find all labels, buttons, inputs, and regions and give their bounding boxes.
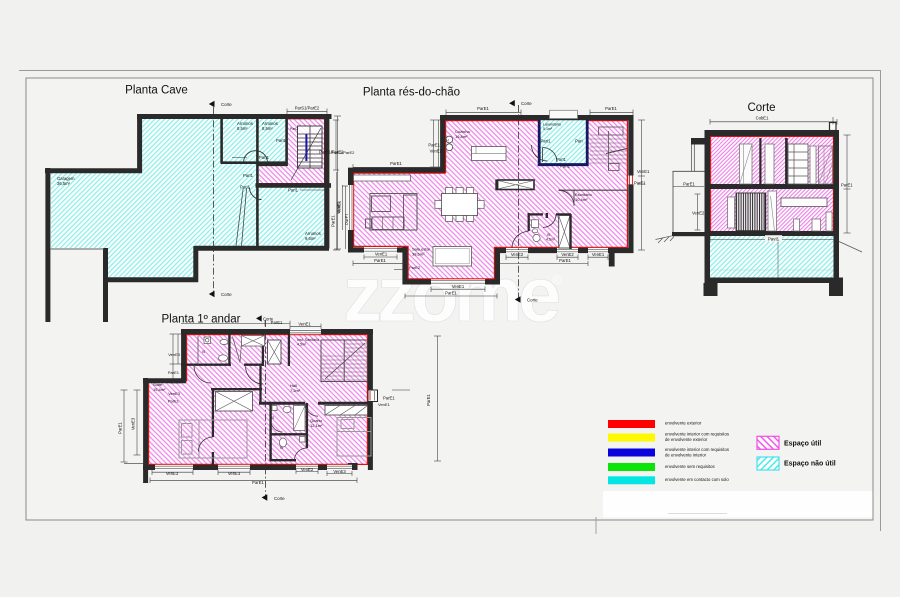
svg-text:VenE3: VenE3 bbox=[333, 469, 346, 474]
svg-text:ParI1: ParI1 bbox=[541, 139, 552, 144]
svg-text:VenE2: VenE2 bbox=[692, 211, 705, 216]
svg-text:VenE2: VenE2 bbox=[511, 252, 524, 257]
svg-text:36,5m²: 36,5m² bbox=[57, 181, 71, 186]
svg-text:CobE1: CobE1 bbox=[756, 116, 769, 121]
svg-text:envolvente interior com requis: envolvente interior com requisitos bbox=[665, 431, 729, 436]
svg-text:ParI1: ParI1 bbox=[560, 164, 571, 169]
svg-text:ParE1: ParE1 bbox=[390, 161, 402, 166]
svg-text:ParE1: ParE1 bbox=[559, 258, 571, 263]
svg-text:ParE1: ParE1 bbox=[168, 370, 180, 375]
svg-text:ParE1: ParE1 bbox=[374, 258, 386, 263]
svg-text:ParE1: ParE1 bbox=[383, 396, 395, 401]
svg-text:7,2m²: 7,2m² bbox=[290, 388, 301, 393]
svg-text:15,4m²: 15,4m² bbox=[153, 387, 166, 392]
svg-text:VenE2: VenE2 bbox=[561, 252, 574, 257]
svg-text:VenE3: VenE3 bbox=[166, 471, 179, 476]
svg-text:9,6m²: 9,6m² bbox=[305, 236, 316, 241]
svg-text:ParI2: ParI2 bbox=[290, 127, 298, 131]
svg-text:ParI: ParI bbox=[575, 139, 583, 144]
svg-text:5,1m²: 5,1m² bbox=[543, 127, 553, 131]
svg-text:Corte: Corte bbox=[747, 102, 775, 114]
svg-text:ParE1: ParE1 bbox=[118, 422, 123, 434]
svg-text:VenE3: VenE3 bbox=[168, 352, 181, 357]
svg-text:VenE1: VenE1 bbox=[298, 321, 311, 326]
svg-text:VenE2: VenE2 bbox=[430, 149, 443, 154]
svg-text:Espaço não útil: Espaço não útil bbox=[784, 461, 836, 468]
svg-text:Planta 1º andar: Planta 1º andar bbox=[161, 314, 240, 326]
svg-text:ParE1: ParE1 bbox=[841, 183, 853, 188]
svg-text:de envolvente interior: de envolvente interior bbox=[665, 453, 707, 458]
svg-text:de envolvente exterior: de envolvente exterior bbox=[665, 437, 708, 442]
svg-text:Corte: Corte bbox=[527, 298, 538, 303]
svg-text:envolvente exterior: envolvente exterior bbox=[665, 421, 702, 426]
svg-text:Inst. Sanitária: Inst. Sanitária bbox=[297, 338, 319, 342]
svg-text:PavI1: PavI1 bbox=[768, 237, 780, 242]
svg-text:VenE1: VenE1 bbox=[378, 402, 391, 407]
svg-text:ParI1: ParI1 bbox=[240, 185, 251, 190]
svg-text:8,5m²: 8,5m² bbox=[262, 126, 273, 131]
svg-text:envolvente sem requisitos: envolvente sem requisitos bbox=[665, 464, 715, 469]
svg-text:ParE1: ParE1 bbox=[426, 394, 431, 406]
svg-text:envolvente interior com requis: envolvente interior com requisitos bbox=[665, 447, 729, 452]
svg-text:VenE3: VenE3 bbox=[168, 391, 181, 396]
svg-text:VenE1: VenE1 bbox=[452, 284, 465, 289]
svg-text:ParI1: ParI1 bbox=[243, 173, 254, 178]
svg-text:ParI1: ParI1 bbox=[259, 155, 270, 160]
svg-text:ParI1: ParI1 bbox=[556, 157, 567, 162]
svg-text:ParI1: ParI1 bbox=[276, 138, 287, 143]
svg-text:ParE1: ParE1 bbox=[252, 480, 264, 485]
svg-text:VenE1: VenE1 bbox=[375, 252, 388, 257]
svg-text:VenE3: VenE3 bbox=[131, 417, 136, 430]
svg-text:Planta Cave: Planta Cave bbox=[125, 85, 188, 97]
svg-text:ParE1: ParE1 bbox=[683, 181, 695, 186]
svg-text:VenE1: VenE1 bbox=[336, 201, 341, 214]
svg-text:Corte: Corte bbox=[521, 101, 532, 106]
svg-text:Corte: Corte bbox=[221, 292, 232, 297]
svg-text:ParE1: ParE1 bbox=[605, 106, 617, 111]
svg-text:Planta rés-do-chão: Planta rés-do-chão bbox=[363, 87, 460, 99]
svg-text:Corte: Corte bbox=[221, 102, 232, 107]
svg-text:VenE3: VenE3 bbox=[228, 471, 241, 476]
svg-text:VenE1: VenE1 bbox=[637, 169, 650, 174]
svg-text:16,8m²: 16,8m² bbox=[455, 134, 468, 139]
svg-text:Corte: Corte bbox=[274, 496, 285, 501]
svg-text:envolvente em contacto com sol: envolvente em contacto com solo bbox=[665, 477, 729, 482]
svg-text:8,5m²: 8,5m² bbox=[237, 126, 248, 131]
svg-text:38,6m²: 38,6m² bbox=[412, 252, 425, 257]
svg-text:ParE1: ParE1 bbox=[634, 181, 646, 186]
svg-text:ParS1/ParE2: ParS1/ParE2 bbox=[295, 106, 320, 111]
svg-text:ParI1: ParI1 bbox=[288, 188, 299, 193]
svg-text:ParE1: ParE1 bbox=[331, 215, 336, 227]
svg-text:ParE2: ParE2 bbox=[409, 265, 421, 270]
svg-text:ParE1: ParE1 bbox=[477, 106, 489, 111]
svg-text:®: ® bbox=[552, 272, 562, 287]
svg-text:Espaço útil: Espaço útil bbox=[784, 440, 821, 447]
svg-text:10,4m²: 10,4m² bbox=[575, 197, 588, 202]
svg-text:12,1m²: 12,1m² bbox=[310, 423, 323, 428]
svg-text:VenE2: VenE2 bbox=[301, 467, 314, 472]
svg-text:VenE1: VenE1 bbox=[592, 252, 605, 257]
svg-text:4,5m²: 4,5m² bbox=[546, 238, 556, 242]
svg-text:IS: IS bbox=[547, 233, 551, 237]
svg-text:ParE1: ParE1 bbox=[168, 399, 180, 404]
svg-text:H: H bbox=[446, 139, 449, 143]
svg-text:4,5m²: 4,5m² bbox=[297, 343, 307, 347]
svg-text:ParE1: ParE1 bbox=[428, 143, 440, 148]
svg-text:Lavandaria: Lavandaria bbox=[543, 123, 561, 127]
svg-text:Corte: Corte bbox=[263, 316, 274, 321]
svg-text:ParE1/ParE2: ParE1/ParE2 bbox=[331, 150, 355, 155]
svg-text:ParE1: ParE1 bbox=[445, 291, 457, 296]
